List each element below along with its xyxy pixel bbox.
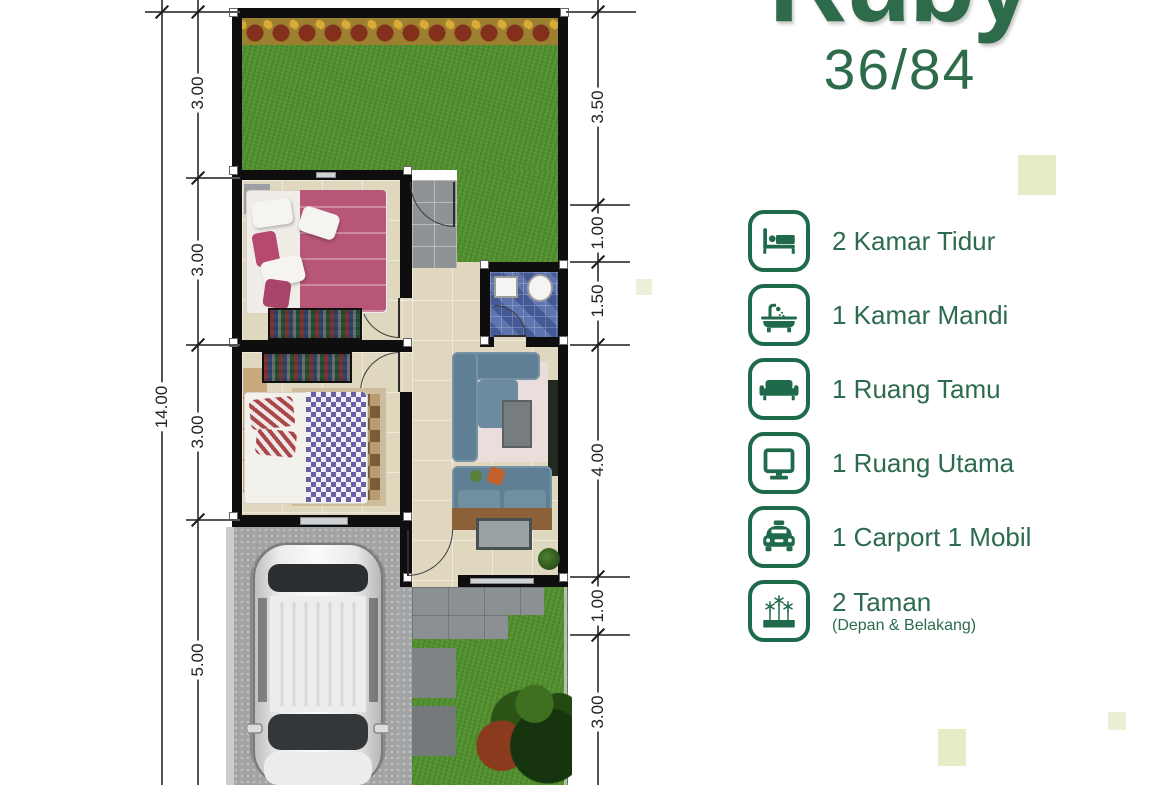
sofa-cushion xyxy=(504,490,546,510)
sink xyxy=(494,276,518,298)
accent-plant xyxy=(470,470,482,482)
extension-line xyxy=(186,177,240,179)
column-post xyxy=(229,338,238,347)
column-post xyxy=(403,338,412,347)
wall xyxy=(558,18,568,578)
column-post xyxy=(480,336,489,345)
front-path xyxy=(412,615,508,639)
extension-line xyxy=(186,519,240,521)
legend-item-living: 1 Ruang Tamu xyxy=(748,358,1031,420)
garden-bush xyxy=(462,645,572,785)
dim-label: 1.50 xyxy=(587,281,609,320)
extension-line xyxy=(566,11,636,13)
bathroom-door-leaf xyxy=(494,335,526,337)
column-post xyxy=(229,166,238,175)
potted-plant xyxy=(538,548,560,570)
pillow xyxy=(249,396,296,430)
sofa-l-side xyxy=(452,352,478,462)
legend-item-mainroom: 1 Ruang Utama xyxy=(748,432,1031,494)
front-path xyxy=(412,587,544,615)
pillow xyxy=(262,278,292,309)
pillow xyxy=(255,428,297,458)
column-post xyxy=(403,512,412,521)
wall xyxy=(480,262,568,272)
dim-label-total: 14.00 xyxy=(151,383,173,432)
back-garden-side xyxy=(457,170,558,262)
decor-square xyxy=(938,729,966,766)
floorplan-poster: 3.00 3.00 3.00 5.00 14.00 3.50 1.00 1.50… xyxy=(0,0,1170,785)
legend-sublabel: (Depan & Belakang) xyxy=(832,617,976,635)
legend-label: 1 Carport 1 Mobil xyxy=(832,522,1031,553)
window xyxy=(470,578,534,584)
window xyxy=(316,172,336,178)
flower-bed xyxy=(242,18,558,45)
legend-item-bedrooms: 2 Kamar Tidur xyxy=(748,210,1031,272)
bathtub-icon xyxy=(748,284,810,346)
toilet xyxy=(527,274,553,302)
column-post xyxy=(480,260,489,269)
dim-label: 3.00 xyxy=(587,692,609,731)
sofa-icon xyxy=(748,358,810,420)
legend-label: 2 Taman xyxy=(832,587,976,618)
dim-label: 3.00 xyxy=(187,412,209,451)
legend-item-bathroom: 1 Kamar Mandi xyxy=(748,284,1031,346)
bed-2-throw xyxy=(306,392,366,502)
decor-square xyxy=(1018,155,1056,195)
dim-label: 4.00 xyxy=(587,440,609,479)
wall xyxy=(400,180,412,298)
pillow xyxy=(250,197,293,228)
column-post xyxy=(559,336,568,345)
bedroom1-door-leaf xyxy=(398,298,400,338)
title-block: Ruby 36/84 xyxy=(690,0,1110,99)
wall xyxy=(232,18,242,520)
column-post xyxy=(559,260,568,269)
legend-label: 1 Ruang Tamu xyxy=(832,374,1001,405)
stepping-stone xyxy=(412,648,456,698)
tv-console xyxy=(548,380,558,476)
stepping-stone xyxy=(412,706,456,756)
page-title: Ruby xyxy=(690,0,1110,38)
carport-fence xyxy=(226,527,234,785)
dim-label: 3.50 xyxy=(587,87,609,126)
dim-label: 3.00 xyxy=(187,73,209,112)
wall xyxy=(400,392,412,515)
car-icon xyxy=(748,506,810,568)
front-door-leaf xyxy=(407,530,409,576)
coffee-table-2 xyxy=(476,518,532,550)
legend-label-group: 2 Taman (Depan & Belakang) xyxy=(810,587,976,635)
coffee-table xyxy=(502,400,532,448)
back-door-leaf xyxy=(453,182,455,227)
rug xyxy=(268,308,362,340)
legend-label: 2 Kamar Tidur xyxy=(832,226,995,257)
column-post xyxy=(229,8,238,17)
dim-label: 1.00 xyxy=(587,213,609,252)
decor-square xyxy=(1108,712,1126,730)
feature-legend: 2 Kamar Tidur 1 Kamar Mandi xyxy=(748,210,1031,654)
dim-label: 5.00 xyxy=(187,640,209,679)
legend-item-garden: 2 Taman (Depan & Belakang) xyxy=(748,580,1031,642)
dim-label: 1.00 xyxy=(587,586,609,625)
column-post xyxy=(559,573,568,582)
extension-line xyxy=(186,344,240,346)
car xyxy=(248,540,388,785)
wall xyxy=(232,340,412,352)
decor-square xyxy=(636,279,652,295)
bed-icon xyxy=(748,210,810,272)
legend-label: 1 Ruang Utama xyxy=(832,448,1014,479)
column-post xyxy=(560,8,569,17)
rug xyxy=(262,352,352,383)
monitor-icon xyxy=(748,432,810,494)
bedroom2-door-leaf xyxy=(398,352,400,392)
legend-label: 1 Kamar Mandi xyxy=(832,300,1008,331)
column-post xyxy=(403,166,412,175)
window xyxy=(300,517,348,525)
title-size: 36/84 xyxy=(690,42,1110,99)
dim-label: 3.00 xyxy=(187,240,209,279)
sofa-cushion xyxy=(458,490,500,510)
wall xyxy=(232,8,568,18)
garden-icon xyxy=(748,580,810,642)
legend-item-carport: 1 Carport 1 Mobil xyxy=(748,506,1031,568)
